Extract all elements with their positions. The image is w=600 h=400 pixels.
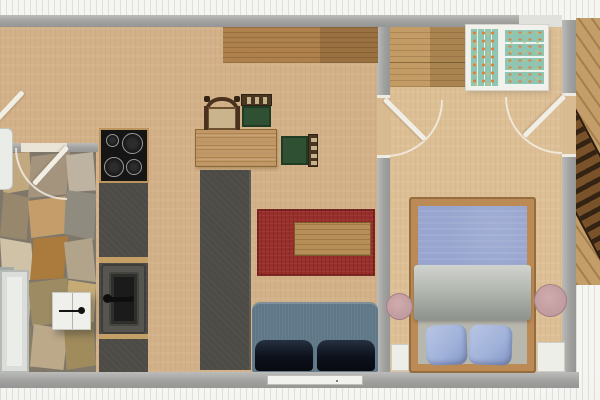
chair-back: [241, 94, 272, 106]
radiator: [0, 270, 29, 373]
faucet-spout: [128, 296, 134, 302]
green-chair-right: [281, 134, 318, 167]
back-slat: [255, 97, 259, 104]
burner: [106, 134, 119, 147]
sofa-cushion: [317, 340, 375, 371]
bed-folded-sheet: [414, 265, 531, 320]
door-jamb: [562, 154, 576, 157]
burner: [104, 157, 124, 177]
wall-partition-lower: [377, 158, 390, 372]
round-rug-right: [534, 284, 567, 317]
stone-tile: [64, 238, 96, 282]
doorway-terrace: [562, 95, 576, 157]
wardrobe: [466, 25, 548, 90]
stone-tile: [66, 152, 96, 192]
chair-seat: [242, 106, 271, 127]
dresser-dark-section: [430, 27, 466, 87]
dining-table: [195, 129, 277, 167]
terrace-deck: [576, 18, 600, 285]
round-rug-left: [386, 293, 413, 320]
nightstand-left: [391, 344, 409, 371]
nightstand-right: [537, 342, 565, 372]
back-slat: [311, 138, 317, 142]
stone-tile: [64, 190, 96, 240]
wall-partition-upper: [377, 27, 390, 97]
back-slat: [247, 97, 251, 104]
burner: [126, 159, 142, 175]
burner: [122, 133, 143, 154]
wall-cabinet: [52, 292, 91, 330]
chair-rail: [204, 106, 208, 130]
window-living: [267, 375, 363, 385]
wardrobe-hanging-section: [470, 29, 499, 86]
back-slat: [311, 161, 317, 165]
stone-tile: [30, 324, 68, 370]
sofa-cushion: [255, 340, 313, 371]
chair-seat: [207, 107, 237, 130]
chair-seat: [281, 136, 308, 165]
faucet-base: [103, 294, 112, 303]
wall-stone-room-right: [67, 143, 98, 152]
cabinet-knob: [78, 307, 85, 314]
cooktop: [99, 128, 149, 183]
bed-duvet: [418, 206, 527, 266]
stone-tile: [30, 236, 68, 280]
floor-plan: [0, 0, 600, 400]
back-slat: [263, 97, 267, 104]
window-handle-dot: [336, 380, 338, 382]
kitchen-sink: [101, 264, 146, 334]
back-slat: [311, 146, 317, 150]
chair-finial: [234, 96, 240, 102]
chair-back: [308, 134, 318, 167]
dresser: [390, 27, 466, 87]
deck-stairs: [576, 76, 600, 285]
sideboard-dark-section: [320, 27, 378, 63]
white-fixture: [0, 128, 13, 190]
sideboard: [223, 27, 378, 63]
stone-tile: [28, 196, 68, 238]
double-bed: [409, 197, 536, 373]
pillow-left: [425, 324, 467, 365]
back-slat: [311, 154, 317, 158]
door-jamb: [377, 95, 390, 98]
coffee-table: [294, 222, 371, 256]
chair-rail: [236, 106, 240, 130]
sofa: [252, 302, 378, 372]
green-chair-top: [241, 94, 272, 128]
pillow-right: [468, 324, 512, 365]
wall-right-upper: [562, 20, 576, 95]
counter-wood-trim: [99, 334, 148, 339]
island-counter: [200, 170, 251, 370]
chair-finial: [204, 96, 210, 102]
dresser-seam: [390, 62, 466, 63]
wooden-armchair: [203, 96, 241, 132]
counter-wood-trim: [99, 257, 148, 263]
wall-right-lower: [562, 157, 576, 372]
wardrobe-shelf-section: [505, 29, 544, 86]
wall-top: [0, 15, 519, 27]
